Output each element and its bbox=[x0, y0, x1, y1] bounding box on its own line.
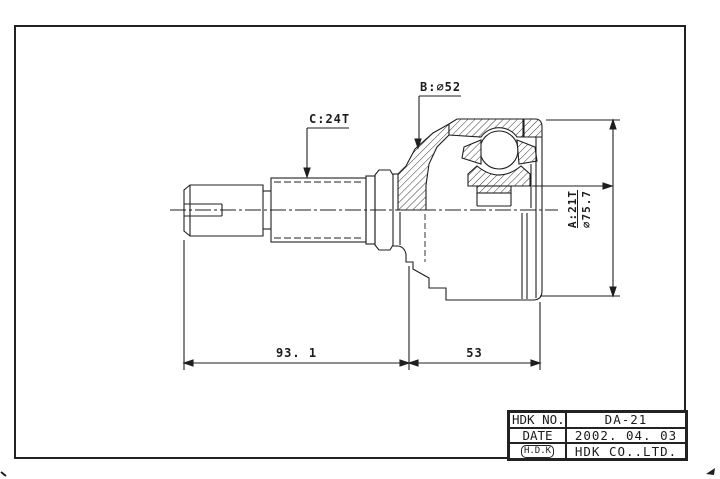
cv-joint-drawing bbox=[0, 0, 720, 479]
title-block-value-company: HDK CO..LTD. bbox=[566, 443, 686, 459]
drawing-sheet: C:24T B:⌀52 93. 1 53 A:21T ⌀75.7 HDK NO.… bbox=[0, 0, 720, 479]
label-diameter-a-text: ⌀75.7 bbox=[580, 190, 594, 228]
hdk-logo: H.D.K bbox=[521, 445, 554, 458]
cage-left bbox=[462, 140, 481, 164]
title-block-logo-cell: H.D.K bbox=[509, 443, 566, 459]
housing-section-upper bbox=[398, 119, 542, 298]
title-block-label-date: DATE bbox=[509, 428, 566, 444]
label-diameter-b: B:⌀52 bbox=[420, 80, 461, 94]
dimension-text-53: 53 bbox=[409, 346, 540, 360]
stub-shaft bbox=[184, 185, 271, 236]
cage-lower-ring bbox=[477, 186, 511, 193]
label-diameter-a: A:21T ⌀75.7 bbox=[565, 177, 595, 241]
label-spline-a-text: A:21T bbox=[566, 190, 580, 228]
outer-race-lip bbox=[524, 119, 542, 137]
ball-bearing bbox=[480, 131, 518, 169]
leader-c bbox=[304, 128, 349, 177]
corner-marks bbox=[1, 468, 715, 476]
cage-right bbox=[517, 140, 537, 164]
dimension-text-93: 93. 1 bbox=[184, 346, 409, 360]
housing-exterior-lower bbox=[393, 212, 542, 300]
outer-race-top-wall bbox=[449, 119, 523, 137]
label-spline-c: C:24T bbox=[309, 112, 350, 126]
title-block-value-drawing-no: DA-21 bbox=[566, 412, 686, 428]
title-block: HDK NO. DA-21 DATE 2002. 04. 03 H.D.K HD… bbox=[507, 410, 688, 461]
title-block-label-hdk-no: HDK NO. bbox=[509, 412, 566, 428]
title-block-value-date: 2002. 04. 03 bbox=[566, 428, 686, 444]
outer-race-back-wall bbox=[398, 124, 449, 210]
